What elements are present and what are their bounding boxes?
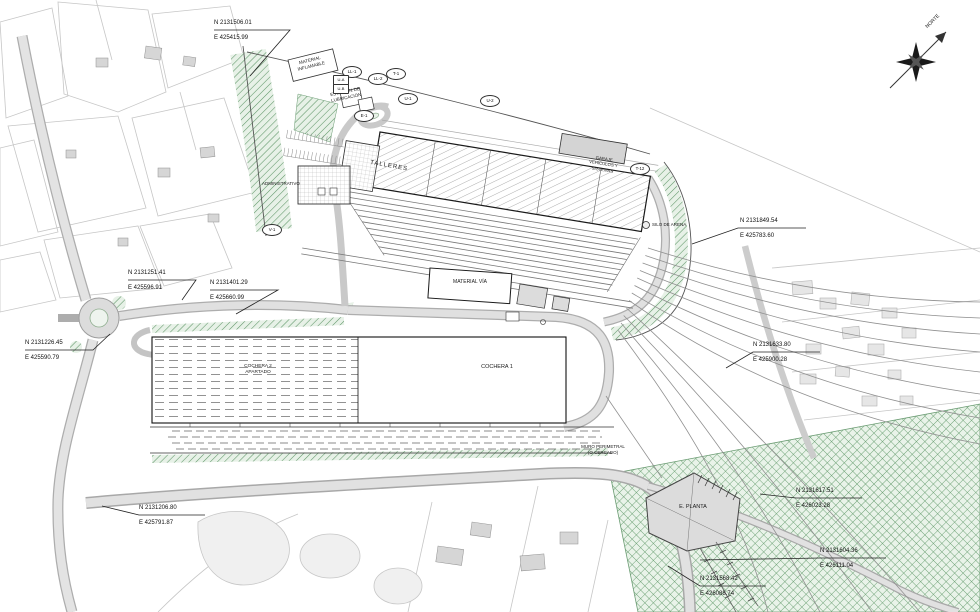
coord-e: E 425590.79 [25,355,63,363]
track-id-bubble: U-1 [398,93,418,105]
label-administrativo: ADMINISTRATIVO [262,181,332,187]
site-plan: N 2131506.01 E 425415.99 N 2131849.54 E … [0,0,980,612]
coord-e: E 426023.28 [796,503,834,511]
coord-callout-ne: N 2131849.54 E 425783.60 [740,210,778,249]
track-id-tag: U-B [333,84,349,94]
track-id-bubble: U-2 [480,95,500,107]
coord-e: E 425596.91 [128,285,166,293]
label-cochera-2: COCHERA 2 APARTADO [234,364,282,376]
roundabout [79,298,119,338]
track-id-bubble: V-1 [262,224,282,236]
coord-e: E 425783.60 [740,233,778,241]
coord-n: N 2131251.41 [128,270,166,278]
label-planta: E. PLANTA [664,504,722,511]
coord-callout-roundabout: N 2131226.45 E 425590.79 [25,332,63,371]
coord-e: E 425900.28 [753,357,791,365]
coord-n: N 2131401.29 [210,280,248,288]
coord-e: E 426111.04 [820,563,858,571]
coord-e: E 426088.74 [700,591,738,599]
depot-shed [150,337,614,453]
track-id-bubble: T-1 [386,68,406,80]
track-material-store [428,268,512,304]
coord-callout-se2: N 2131604.36 E 426111.04 [820,540,858,579]
coord-n: N 2131206.80 [139,505,177,513]
coord-callout-e: N 2131633.80 E 425900.28 [753,334,791,373]
outside-stabling-band [168,431,604,449]
label-muro-perimetral: MURO PERIMETRAL (O CERCADO) [572,444,634,455]
sand-silo [643,222,650,229]
coord-n: N 2131849.54 [740,218,778,226]
label-silo-arena: SILO DE ARENA [652,222,706,228]
coord-n: N 2131633.80 [753,342,791,350]
coord-n: N 2131226.45 [25,340,63,348]
coord-e: E 425791.87 [139,520,177,528]
coord-n: N 2131568.42 [700,576,738,584]
coord-callout-sw: N 2131206.80 E 425791.87 [139,497,177,536]
track-id-bubble: LL-2 [368,73,388,85]
coord-e: E 425415.99 [214,35,252,43]
label-cochera-1: COCHERA 1 [462,364,532,371]
coord-n: N 2131604.36 [820,548,858,556]
coord-callout-s: N 2131568.42 E 426088.74 [700,568,738,607]
label-material-via: MATERIAL VÍA [432,279,508,285]
coord-e: E 425660.99 [210,295,248,303]
cochera-stabling-tracks [153,338,358,422]
coord-callout-w1: N 2131251.41 E 425596.91 [128,262,166,301]
coord-callout-w2: N 2131401.29 E 425660.99 [210,272,248,311]
track-id-bubble: E-1 [354,110,374,122]
north-compass [890,32,946,88]
coord-callout-se1: N 2131617.51 E 426023.28 [796,480,834,519]
track-id-bubble: T-12 [630,163,650,175]
coord-n: N 2131506.01 [214,20,252,28]
coord-callout-nw: N 2131506.01 E 425415.99 [214,12,252,51]
coord-n: N 2131617.51 [796,488,834,496]
